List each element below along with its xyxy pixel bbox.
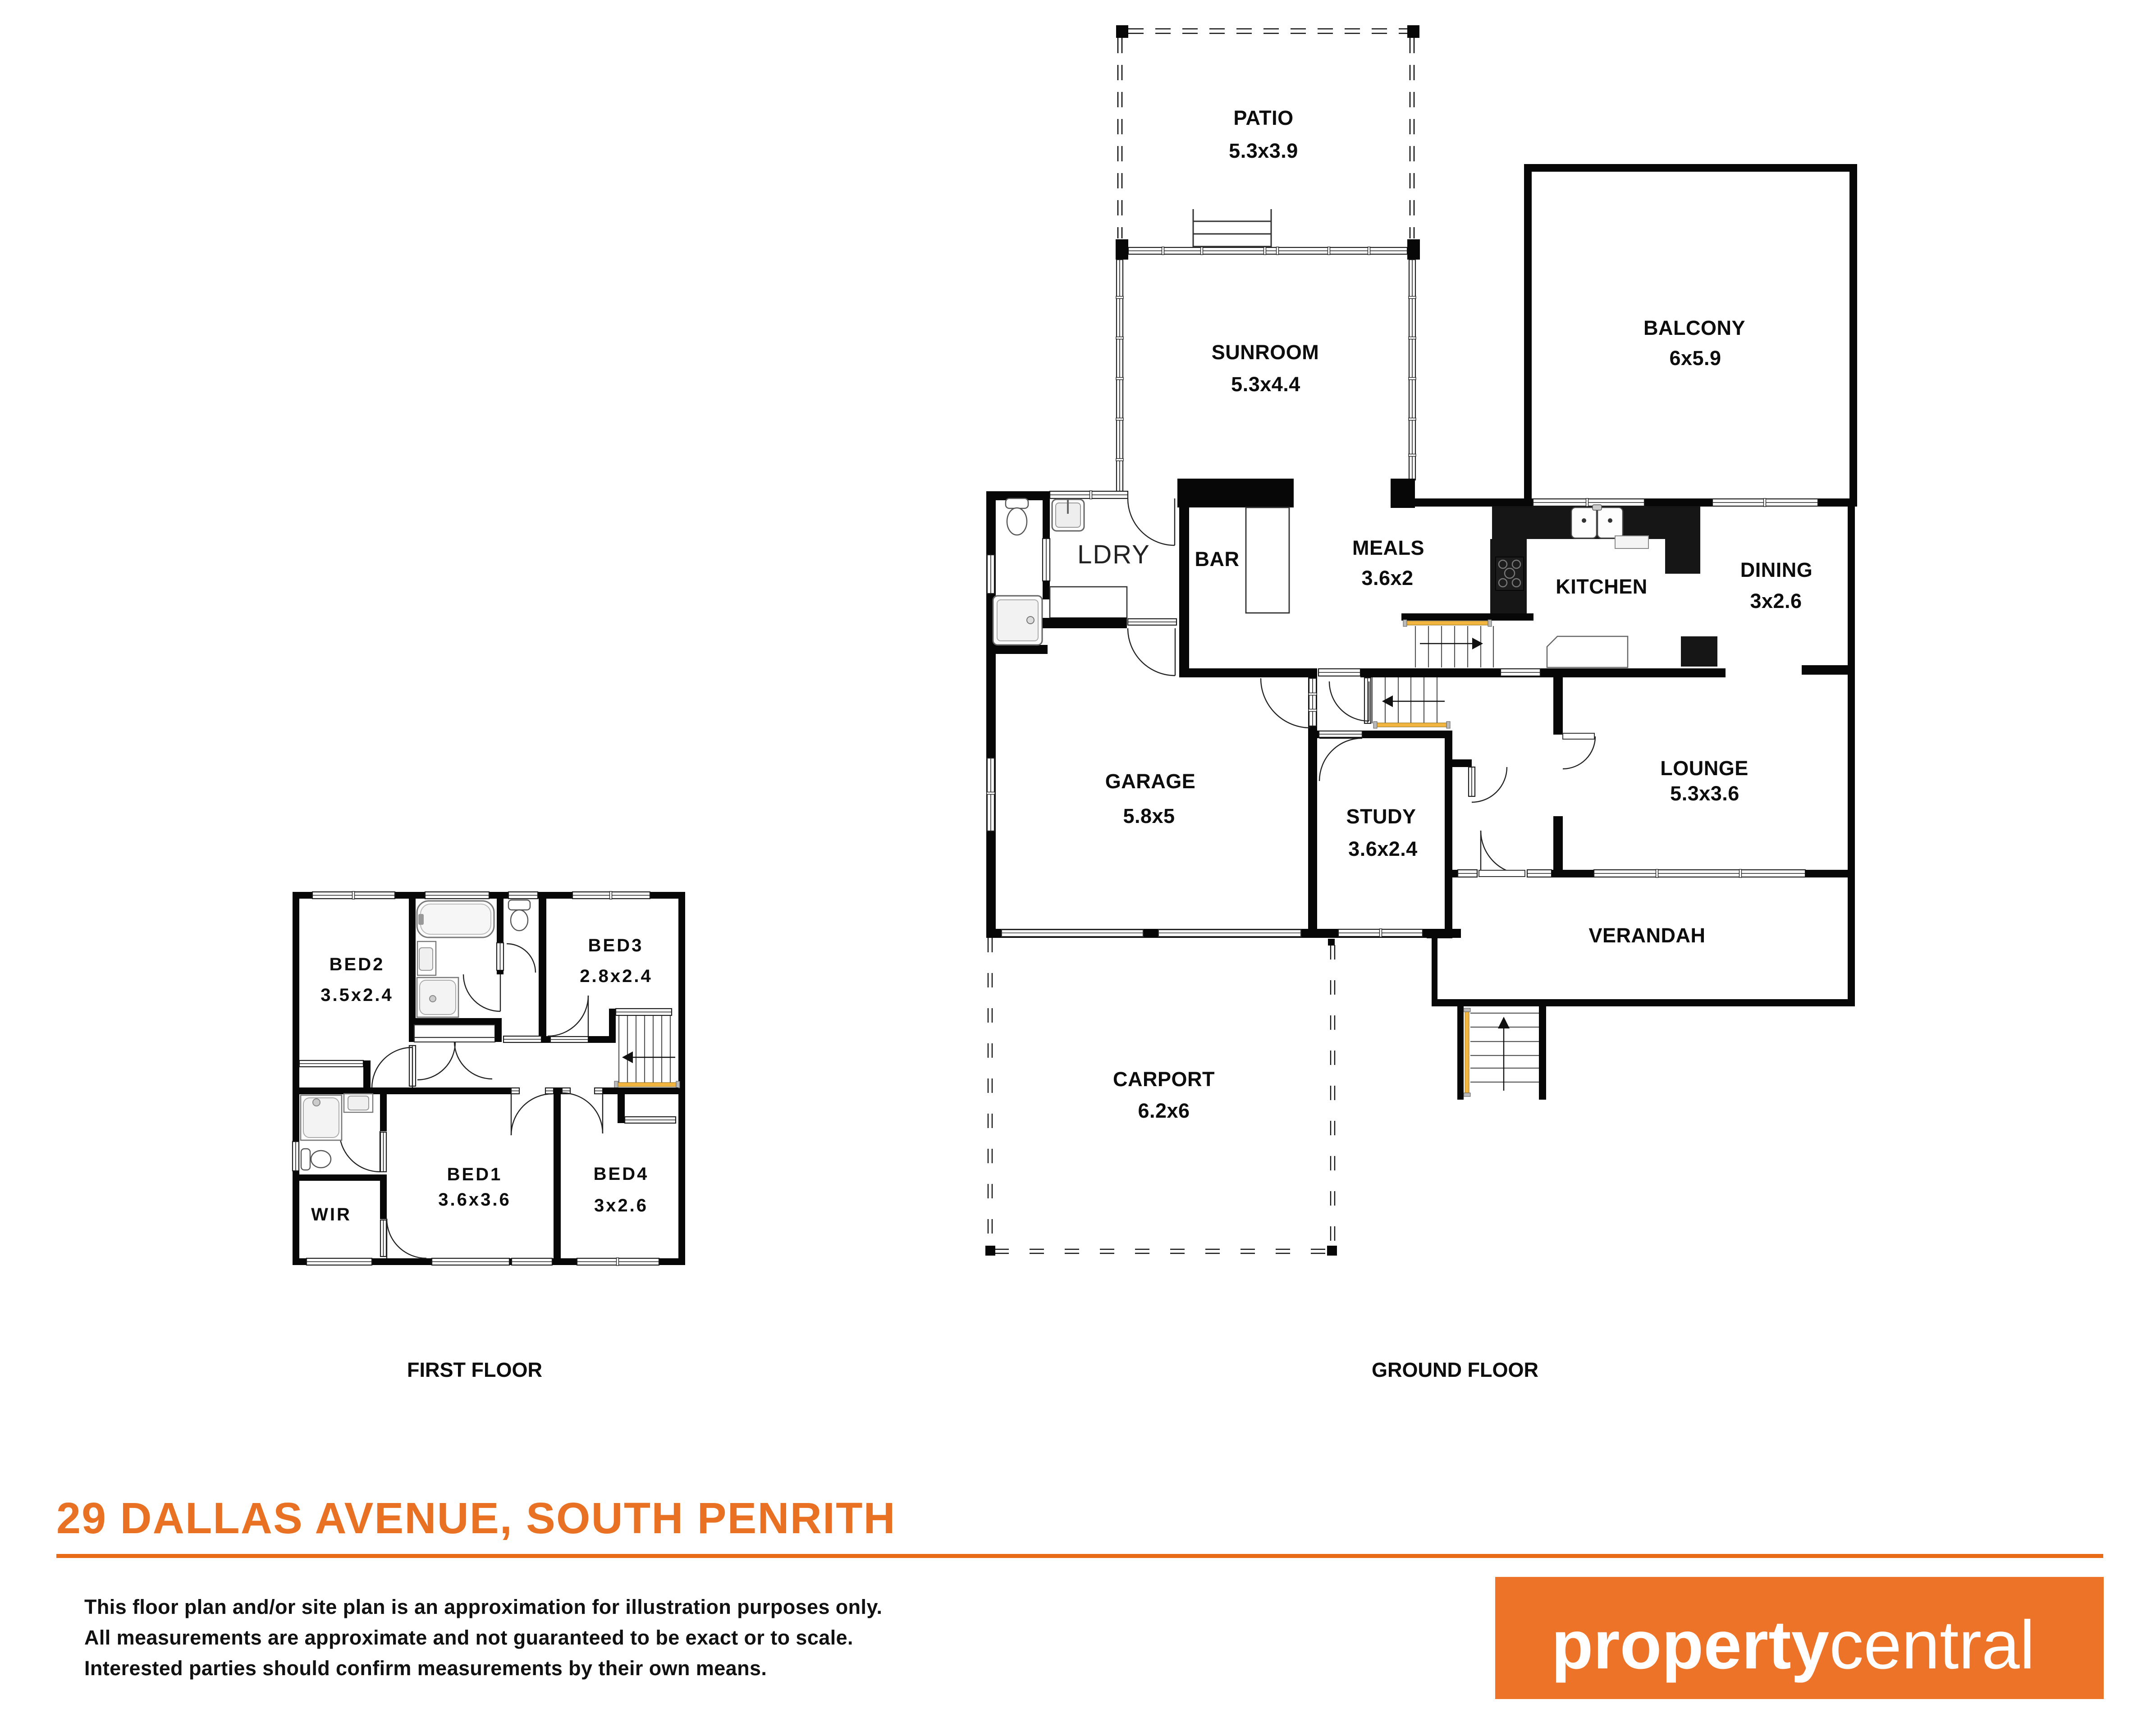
svg-text:VERANDAH: VERANDAH	[1588, 924, 1705, 947]
svg-text:Interested parties should conf: Interested parties should confirm measur…	[84, 1657, 767, 1680]
svg-text:MEALS: MEALS	[1352, 536, 1424, 559]
svg-text:KITCHEN: KITCHEN	[1556, 575, 1648, 598]
svg-text:SUNROOM: SUNROOM	[1212, 341, 1319, 364]
svg-text:BED1: BED1	[447, 1165, 503, 1184]
svg-text:GARAGE: GARAGE	[1105, 770, 1196, 793]
svg-text:This floor plan and/or site pl: This floor plan and/or site plan is an a…	[84, 1595, 882, 1618]
svg-text:BED4: BED4	[594, 1164, 649, 1184]
svg-text:5.8x5: 5.8x5	[1123, 804, 1175, 827]
svg-text:LOUNGE: LOUNGE	[1660, 757, 1749, 780]
svg-text:PATIO: PATIO	[1233, 106, 1293, 129]
svg-text:propertycentral: propertycentral	[1552, 1607, 2035, 1683]
svg-text:DINING: DINING	[1740, 558, 1813, 581]
svg-text:STUDY: STUDY	[1346, 805, 1416, 828]
svg-text:2.8x2.4: 2.8x2.4	[580, 966, 652, 986]
svg-text:5.3x3.9: 5.3x3.9	[1229, 139, 1298, 162]
svg-text:3.6x2: 3.6x2	[1361, 567, 1413, 589]
svg-text:3x2.6: 3x2.6	[594, 1196, 648, 1215]
svg-text:BED3: BED3	[588, 936, 644, 955]
svg-text:All measurements are approxima: All measurements are approximate and not…	[84, 1626, 853, 1649]
svg-text:3.5x2.4: 3.5x2.4	[320, 985, 393, 1005]
svg-text:6x5.9: 6x5.9	[1669, 347, 1721, 370]
svg-text:WIR: WIR	[311, 1205, 352, 1224]
svg-text:3x2.6: 3x2.6	[1750, 589, 1802, 612]
svg-text:BALCONY: BALCONY	[1643, 316, 1745, 339]
svg-text:CARPORT: CARPORT	[1113, 1068, 1215, 1091]
svg-text:29 DALLAS AVENUE, SOUTH PENRIT: 29 DALLAS AVENUE, SOUTH PENRITH	[56, 1494, 896, 1543]
svg-text:5.3x4.4: 5.3x4.4	[1231, 373, 1300, 396]
svg-text:LDRY: LDRY	[1077, 540, 1150, 569]
svg-text:3.6x3.6: 3.6x3.6	[438, 1190, 511, 1210]
svg-text:5.3x3.6: 5.3x3.6	[1670, 782, 1739, 805]
svg-text:BAR: BAR	[1195, 548, 1240, 571]
svg-text:3.6x2.4: 3.6x2.4	[1348, 837, 1418, 860]
svg-text:GROUND FLOOR: GROUND FLOOR	[1372, 1358, 1538, 1381]
svg-text:6.2x6: 6.2x6	[1138, 1099, 1190, 1122]
svg-text:BED2: BED2	[330, 955, 385, 974]
svg-text:FIRST FLOOR: FIRST FLOOR	[407, 1358, 542, 1381]
